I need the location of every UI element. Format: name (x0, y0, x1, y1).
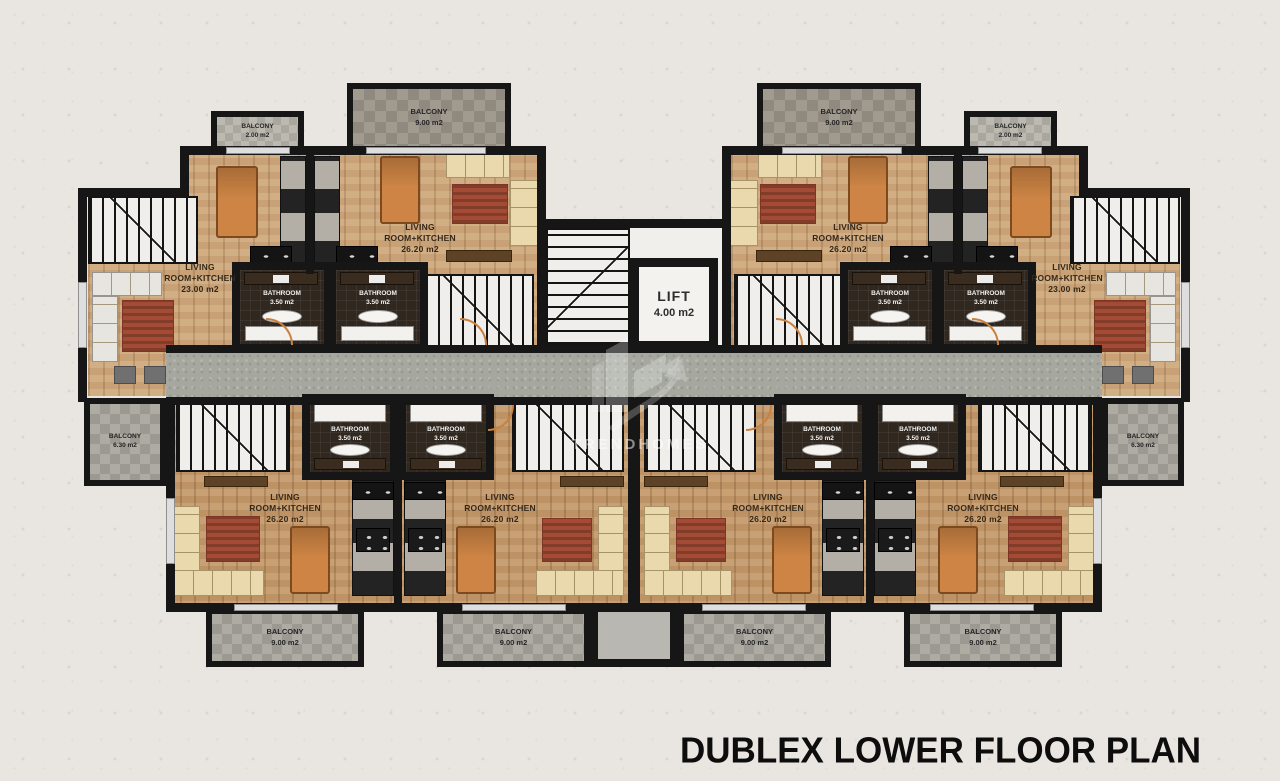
bathroom-b2: BATHROOM3.50 m2 (406, 402, 486, 472)
bathroom-a2: BATHROOM3.50 m2 (336, 270, 420, 344)
bathroom-area: 3.50 m2 (336, 299, 420, 308)
cooktop-b3 (826, 528, 860, 552)
balcony-area: 9.00 m2 (820, 118, 857, 128)
room-area: 26.20 m2 (440, 514, 560, 525)
window (226, 147, 290, 154)
window (78, 282, 87, 348)
balcony-area: 6.30 m2 (109, 442, 141, 451)
vanity (410, 458, 482, 470)
bathroom-name: BATHROOM (310, 426, 390, 435)
balcony-area: 6.30 m2 (1127, 442, 1159, 451)
wall (537, 146, 546, 352)
rug (452, 184, 508, 224)
bathroom-label: BATHROOM3.50 m2 (848, 290, 932, 308)
dining-table (938, 526, 978, 594)
bathroom-label: BATHROOM3.50 m2 (406, 426, 486, 444)
bathroom-name: BATHROOM (878, 426, 958, 435)
room-label-line: ROOM+KITCHEN (140, 273, 260, 284)
room-label-line: ROOM+KITCHEN (440, 503, 560, 514)
vanity (852, 272, 926, 285)
bathroom-area: 3.50 m2 (406, 435, 486, 444)
sofa (1004, 570, 1094, 596)
balcony-side-right: BALCONY 6.30 m2 (1102, 398, 1184, 486)
watermark-text: TRENDHOMES (520, 436, 760, 453)
watermark-logo-icon (572, 316, 712, 434)
sofa (644, 570, 732, 596)
room-area: 26.20 m2 (708, 514, 828, 525)
bathroom-area: 3.50 m2 (848, 299, 932, 308)
bathroom-name: BATHROOM (406, 426, 486, 435)
balcony-label: BALCONY 9.00 m2 (266, 627, 303, 647)
bathtub (358, 310, 398, 323)
tv-bench (560, 476, 624, 487)
cooktop-b4 (878, 528, 912, 552)
stairs-a1 (88, 196, 198, 264)
shower (410, 404, 482, 422)
wall (954, 152, 962, 274)
wall (394, 478, 402, 608)
sofa (1150, 296, 1176, 362)
vanity (882, 458, 954, 470)
wall (1079, 188, 1190, 197)
room-label-b4: LIVING ROOM+KITCHEN 26.20 m2 (923, 492, 1043, 525)
room-label-line: ROOM+KITCHEN (923, 503, 1043, 514)
balcony-top-left-large: BALCONY 9.00 m2 (347, 83, 511, 152)
sink (911, 461, 927, 468)
sink (343, 461, 359, 468)
bathroom-area: 3.50 m2 (782, 435, 862, 444)
balcony-name: BALCONY (994, 123, 1026, 132)
floor-plan: BALCONY 9.00 m2 BALCONY 9.00 m2 BALCONY … (0, 0, 1280, 781)
balcony-label: BALCONY 2.00 m2 (241, 123, 273, 141)
balcony-label: BALCONY 6.30 m2 (109, 433, 141, 451)
balcony-area: 2.00 m2 (994, 132, 1026, 141)
bathroom-b4: BATHROOM3.50 m2 (878, 402, 958, 472)
room-label-line: LIVING (140, 262, 260, 273)
bathroom-name: BATHROOM (782, 426, 862, 435)
room-area: 26.20 m2 (225, 514, 345, 525)
sofa (758, 152, 822, 178)
room-label-line: ROOM+KITCHEN (1007, 273, 1127, 284)
bathroom-area: 3.50 m2 (310, 435, 390, 444)
balcony-name: BALCONY (109, 433, 141, 442)
balcony-label: BALCONY 9.00 m2 (736, 627, 773, 647)
stairs-a4 (1070, 196, 1180, 264)
room-area: 26.20 m2 (923, 514, 1043, 525)
sofa (644, 506, 670, 572)
balcony-area: 9.00 m2 (266, 638, 303, 648)
window (1093, 498, 1102, 564)
walkway (590, 608, 678, 667)
balcony-name: BALCONY (736, 627, 773, 637)
balcony-bottom-4: BALCONY 9.00 m2 (904, 608, 1062, 667)
balcony-label: BALCONY 9.00 m2 (820, 107, 857, 127)
wall (78, 188, 189, 197)
room-label-line: LIVING (1007, 262, 1127, 273)
sink (815, 461, 831, 468)
bathroom-name: BATHROOM (848, 290, 932, 299)
stove-b1 (352, 482, 394, 500)
sink (273, 275, 289, 283)
tv-bench (644, 476, 708, 487)
window (166, 498, 175, 564)
balcony-name: BALCONY (964, 627, 1001, 637)
shower (314, 404, 386, 422)
room-area: 26.20 m2 (788, 244, 908, 255)
balcony-name: BALCONY (1127, 433, 1159, 442)
window (702, 604, 806, 611)
dining-table (848, 156, 888, 224)
balcony-area: 9.00 m2 (964, 638, 1001, 648)
armchair (114, 366, 136, 384)
window (234, 604, 338, 611)
vanity (314, 458, 386, 470)
room-label-line: ROOM+KITCHEN (788, 233, 908, 244)
window (462, 604, 566, 611)
cooktop-b2 (408, 528, 442, 552)
bathtub (898, 444, 938, 456)
bathroom-name: BATHROOM (336, 290, 420, 299)
balcony-name: BALCONY (820, 107, 857, 117)
bathtub (330, 444, 370, 456)
sofa (446, 152, 510, 178)
balcony-bottom-3: BALCONY 9.00 m2 (678, 608, 831, 667)
chaise-sofa (510, 180, 538, 246)
room-label-line: ROOM+KITCHEN (360, 233, 480, 244)
dining-table (456, 526, 496, 594)
balcony-name: BALCONY (241, 123, 273, 132)
room-label-line: LIVING (360, 222, 480, 233)
bathroom-label: BATHROOM3.50 m2 (782, 426, 862, 444)
bathtub (426, 444, 466, 456)
room-label-a2: LIVING ROOM+KITCHEN 26.20 m2 (360, 222, 480, 255)
sofa (598, 506, 624, 572)
window (366, 147, 486, 154)
wall (537, 219, 731, 228)
room-label-b1: LIVING ROOM+KITCHEN 26.20 m2 (225, 492, 345, 525)
dining-table (216, 166, 258, 238)
bathroom-label: BATHROOM3.50 m2 (878, 426, 958, 444)
armchair (1102, 366, 1124, 384)
room-label-line: ROOM+KITCHEN (225, 503, 345, 514)
sink (977, 275, 993, 283)
armchair (1132, 366, 1154, 384)
bathroom-label: BATHROOM3.50 m2 (310, 426, 390, 444)
balcony-label: BALCONY 2.00 m2 (994, 123, 1026, 141)
balcony-top-right-large: BALCONY 9.00 m2 (757, 83, 921, 152)
bathroom-area: 3.50 m2 (878, 435, 958, 444)
background-cover (1088, 140, 1190, 188)
window (978, 147, 1042, 154)
balcony-name: BALCONY (410, 107, 447, 117)
armchair (144, 366, 166, 384)
window (930, 604, 1034, 611)
vanity (340, 272, 414, 285)
balcony-area: 9.00 m2 (736, 638, 773, 648)
bathroom-label: BATHROOM3.50 m2 (336, 290, 420, 308)
balcony-bottom-1: BALCONY 9.00 m2 (206, 608, 364, 667)
room-label-b3: LIVING ROOM+KITCHEN 26.20 m2 (708, 492, 828, 525)
sofa (536, 570, 624, 596)
window (1181, 282, 1190, 348)
sink (369, 275, 385, 283)
shower (853, 326, 926, 341)
balcony-side-left: BALCONY 6.30 m2 (84, 398, 166, 486)
stove-b3 (822, 482, 864, 500)
balcony-area: 9.00 m2 (495, 638, 532, 648)
room-label-line: LIVING (708, 492, 828, 503)
wall (722, 146, 731, 352)
stairs-b4 (978, 400, 1092, 472)
bathroom-b1: BATHROOM3.50 m2 (310, 402, 390, 472)
room-area: 23.00 m2 (140, 284, 260, 295)
room-label-line: LIVING (788, 222, 908, 233)
sink (881, 275, 897, 283)
background-cover (78, 140, 180, 188)
balcony-label: BALCONY 9.00 m2 (495, 627, 532, 647)
dining-table (1010, 166, 1052, 238)
stairs-b1 (176, 400, 290, 472)
bathtub (870, 310, 910, 323)
sofa (174, 506, 200, 572)
room-label-line: ROOM+KITCHEN (708, 503, 828, 514)
bathroom-a3: BATHROOM3.50 m2 (848, 270, 932, 344)
sofa (174, 570, 264, 596)
bathroom-area: 3.50 m2 (944, 299, 1028, 308)
lift-name: LIFT (654, 287, 694, 306)
shower (786, 404, 858, 422)
sofa (92, 296, 118, 362)
floor-plan-title: DUBLEX LOWER FLOOR PLAN (680, 730, 1192, 772)
dining-table (380, 156, 420, 224)
balcony-bottom-2: BALCONY 9.00 m2 (437, 608, 590, 667)
wall (866, 478, 874, 608)
balcony-area: 2.00 m2 (241, 132, 273, 141)
room-label-line: LIVING (225, 492, 345, 503)
balcony-area: 9.00 m2 (410, 118, 447, 128)
balcony-name: BALCONY (266, 627, 303, 637)
dining-table (290, 526, 330, 594)
sofa (1068, 506, 1094, 572)
chaise-sofa (730, 180, 758, 246)
cooktop-b1 (356, 528, 390, 552)
balcony-name: BALCONY (495, 627, 532, 637)
balcony-label: BALCONY 6.30 m2 (1127, 433, 1159, 451)
wall (306, 152, 314, 274)
stove-b4 (874, 482, 916, 500)
room-label-b2: LIVING ROOM+KITCHEN 26.20 m2 (440, 492, 560, 525)
dining-table (772, 526, 812, 594)
shower (882, 404, 954, 422)
balcony-label: BALCONY 9.00 m2 (964, 627, 1001, 647)
tv-bench (204, 476, 268, 487)
balcony-label: BALCONY 9.00 m2 (410, 107, 447, 127)
bathtub (802, 444, 842, 456)
room-label-a3: LIVING ROOM+KITCHEN 26.20 m2 (788, 222, 908, 255)
room-label-line: LIVING (923, 492, 1043, 503)
room-area: 26.20 m2 (360, 244, 480, 255)
tv-bench (1000, 476, 1064, 487)
room-label-a4: LIVING ROOM+KITCHEN 23.00 m2 (1007, 262, 1127, 295)
bathroom-b3: BATHROOM3.50 m2 (782, 402, 862, 472)
room-area: 23.00 m2 (1007, 284, 1127, 295)
vanity (786, 458, 858, 470)
room-label-a1: LIVING ROOM+KITCHEN 23.00 m2 (140, 262, 260, 295)
bathroom-area: 3.50 m2 (240, 299, 324, 308)
sink (439, 461, 455, 468)
shower (341, 326, 414, 341)
room-label-line: LIVING (440, 492, 560, 503)
window (782, 147, 902, 154)
rug (760, 184, 816, 224)
